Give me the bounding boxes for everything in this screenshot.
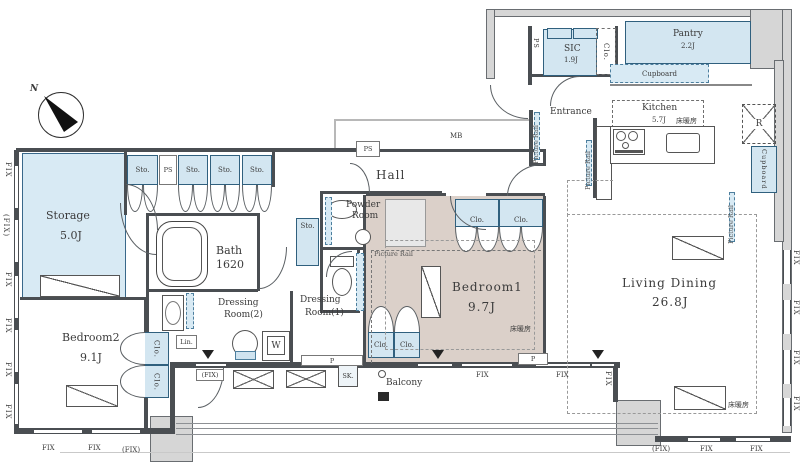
folding-door xyxy=(242,185,257,212)
room-label-kitchen: Kitchen xyxy=(642,103,677,113)
room-label-entrance: Entrance xyxy=(550,107,592,117)
fix-label: (FIX) xyxy=(122,446,140,454)
north-label: N xyxy=(30,84,38,94)
ac-unit xyxy=(286,370,326,388)
wall xyxy=(543,196,546,366)
fix-label: FIX xyxy=(4,404,12,436)
door-arc xyxy=(259,247,287,289)
cupboard: Cupboard xyxy=(610,64,709,83)
drain xyxy=(378,370,386,378)
pipe-space: PS xyxy=(356,141,380,157)
wall-strip xyxy=(186,293,194,329)
fix-window xyxy=(783,350,791,384)
sic-shelf xyxy=(547,28,572,39)
cupboard-label: Cupboard xyxy=(760,149,768,190)
folding-door xyxy=(225,185,240,212)
room-label-living-dining: Living Dining xyxy=(622,276,717,290)
floor-heating-line xyxy=(567,180,568,216)
closet-sto: Sto. xyxy=(210,155,240,185)
room-area-storage: 5.0J xyxy=(60,230,82,242)
ac-unit xyxy=(233,370,274,389)
closet-clo: Clo. xyxy=(144,365,169,398)
folding-door xyxy=(120,365,145,398)
washer-space-inner: W xyxy=(267,336,285,355)
floor-heating-label: 床暖房 xyxy=(676,116,697,126)
wall-strip xyxy=(325,197,332,245)
stove-burner xyxy=(628,131,638,141)
floor-heating-area xyxy=(567,214,757,414)
balcony-rail xyxy=(176,423,658,424)
clo-label: Clo. xyxy=(153,340,161,358)
wall xyxy=(148,289,258,292)
sto-label: Sto. xyxy=(301,222,315,230)
r-label: R xyxy=(754,119,765,129)
fix-window xyxy=(14,384,19,424)
fix-label: FIX xyxy=(750,445,763,453)
vanity-bowl xyxy=(165,301,181,325)
folding-door xyxy=(178,185,193,212)
w-label: W xyxy=(271,341,280,351)
room-label-storage: Storage xyxy=(46,210,90,222)
cupboard: Cupboard xyxy=(751,146,777,193)
room-label-powder-l1: Powder xyxy=(346,200,380,210)
room-size-bath: 1620 xyxy=(216,259,244,271)
folding-door xyxy=(120,332,145,365)
fix-window xyxy=(783,398,791,426)
fix-window xyxy=(783,300,791,334)
door-direction-marker xyxy=(202,350,214,359)
fix-window xyxy=(783,250,791,284)
fix-label: (FIX) xyxy=(2,214,10,254)
room-label-dressing1-l2: Room(1) xyxy=(305,308,344,318)
fix-label: FIX xyxy=(4,272,12,304)
compass-needle xyxy=(38,92,84,138)
door-arc xyxy=(507,164,543,196)
closet-clo: Clo. xyxy=(144,332,169,365)
fix-panel: (FIX) xyxy=(196,369,224,381)
corridor-line xyxy=(334,119,530,121)
fix-label: FIX xyxy=(604,371,612,399)
folding-door xyxy=(257,185,272,212)
wall xyxy=(610,84,752,86)
fix-label: FIX xyxy=(556,371,569,379)
room-label-bedroom1: Bedroom1 xyxy=(452,280,523,294)
fix-window xyxy=(14,276,19,318)
wall xyxy=(290,291,293,366)
sto-label: Sto. xyxy=(136,166,150,174)
floor-plan: Sto. PS Sto. Sto. Sto. Clo. Clo. Clo. Cl… xyxy=(0,0,800,463)
wall xyxy=(20,297,146,300)
fix-label: (FIX) xyxy=(202,371,219,379)
room-label-bath: Bath xyxy=(216,245,242,257)
fix-label: FIX xyxy=(88,444,101,452)
wall xyxy=(366,149,543,152)
window xyxy=(418,363,452,367)
fix-window xyxy=(736,437,770,442)
sic-shelf xyxy=(573,28,598,39)
wall xyxy=(655,436,791,442)
sink-bowl xyxy=(355,229,371,245)
room-area-kitchen: 5.7J xyxy=(652,116,666,124)
folding-door xyxy=(193,185,208,212)
floor-heating-label: 床暖房 xyxy=(728,400,749,410)
picture-rail-label: Picture Rail xyxy=(727,190,735,244)
fix-label: (FIX) xyxy=(652,445,670,453)
room-label-hall: Hall xyxy=(376,168,405,182)
fix-label: FIX xyxy=(4,162,12,194)
outer-line xyxy=(60,452,790,453)
fix-label: FIX xyxy=(4,318,12,350)
room-area-sic: 1.9J xyxy=(564,56,578,64)
clo-label: Clo. xyxy=(602,43,610,61)
closet-sto: Sto. xyxy=(296,218,319,266)
sk-label: SK. xyxy=(342,372,353,380)
fix-label: FIX xyxy=(792,396,800,428)
fix-window xyxy=(14,166,19,208)
p-label: P xyxy=(330,357,334,365)
wall xyxy=(170,362,175,434)
room-label-powder-l2: Room xyxy=(352,211,378,221)
fix-label: FIX xyxy=(792,300,800,332)
f​ix-label: FIX xyxy=(792,250,800,282)
fix-window xyxy=(462,363,512,367)
balcony-rail xyxy=(176,434,658,435)
sto-label: Sto. xyxy=(186,166,200,174)
room-label-dressing1-l1: Dressing xyxy=(300,295,341,305)
kitchen-sink xyxy=(666,133,700,153)
sto-label: Sto. xyxy=(218,166,232,174)
clo-label: Clo. xyxy=(514,216,528,224)
wall xyxy=(486,9,792,17)
picture-rail-line xyxy=(371,250,372,363)
wall xyxy=(486,9,495,79)
picture-rail-label: Picture Rail xyxy=(374,250,413,258)
fix-window xyxy=(14,220,19,262)
mb-label: MB xyxy=(450,132,462,140)
stove-grill xyxy=(615,150,643,153)
slop-sink: SK. xyxy=(338,365,358,387)
fix-window xyxy=(688,437,720,442)
pillar-box: P xyxy=(301,355,363,366)
hose-bib xyxy=(378,392,389,401)
wall xyxy=(272,151,275,187)
wall-strip xyxy=(356,253,364,311)
room-label-sic: SIC xyxy=(564,44,581,54)
room-area-pantry: 2.2J xyxy=(681,42,695,50)
folding-door xyxy=(210,185,225,212)
ps-label: PS xyxy=(364,145,373,153)
cupboard-label: Cupboard xyxy=(642,70,677,78)
closet-clo: Clo. xyxy=(499,199,543,227)
p-label: P xyxy=(531,355,535,363)
bathtub-inner xyxy=(162,227,202,281)
door-arc xyxy=(550,76,580,106)
door-arc xyxy=(326,251,352,277)
wall xyxy=(16,148,368,152)
furniture xyxy=(40,275,120,297)
room-label-dressing2-l2: Room(2) xyxy=(224,310,263,320)
fix-label: FIX xyxy=(700,445,713,453)
linen-closet: Lin. xyxy=(176,335,197,349)
fix-label: FIX xyxy=(792,350,800,382)
door-direction-marker xyxy=(432,350,444,359)
closet-sto: Sto. xyxy=(178,155,208,185)
fix-window xyxy=(92,429,140,434)
corridor-line xyxy=(334,121,336,148)
clo-label: Clo. xyxy=(153,373,161,391)
room-label-dressing2-l1: Dressing xyxy=(218,298,259,308)
stove-burner xyxy=(622,142,629,149)
wall xyxy=(320,191,442,194)
room-label-balcony: Balcony xyxy=(386,378,422,388)
closet-sto: Sto. xyxy=(127,155,158,185)
fix-label: FIX xyxy=(42,444,55,452)
closet-sto: Sto. xyxy=(242,155,272,185)
room-label-pantry: Pantry xyxy=(673,29,703,39)
refrigerator-space: R xyxy=(742,104,776,144)
fix-window xyxy=(34,429,82,434)
fix-label: FIX xyxy=(4,362,12,394)
entrance-door-arc xyxy=(490,85,528,119)
floor-heating-label: 床暖房 xyxy=(510,324,531,334)
fix-label: FIX xyxy=(476,371,489,379)
furniture xyxy=(66,385,118,407)
fix-window xyxy=(14,330,19,372)
pillar-box: P xyxy=(518,353,548,365)
stove-burner xyxy=(616,131,626,141)
ps-label: PS xyxy=(532,38,540,58)
sto-label: Sto. xyxy=(250,166,264,174)
door-arc xyxy=(350,163,370,193)
wall xyxy=(146,213,260,216)
picture-rail-label: Picture Rail xyxy=(584,140,592,190)
room-label-bedroom2: Bedroom2 xyxy=(62,332,120,344)
lin-label: Lin. xyxy=(180,338,193,346)
balcony-rail xyxy=(176,428,658,429)
room-area-bedroom2: 9.1J xyxy=(80,352,102,364)
window xyxy=(196,363,226,367)
ps-label: PS xyxy=(164,166,173,174)
laundry-sink-base xyxy=(235,351,256,360)
room-area-living-dining: 26.8J xyxy=(652,295,689,309)
picture-rail-label: Picture Rail xyxy=(532,112,540,164)
wall xyxy=(320,247,366,250)
pipe-space: PS xyxy=(159,155,177,185)
room-area-bedroom1: 9.7J xyxy=(468,300,496,314)
